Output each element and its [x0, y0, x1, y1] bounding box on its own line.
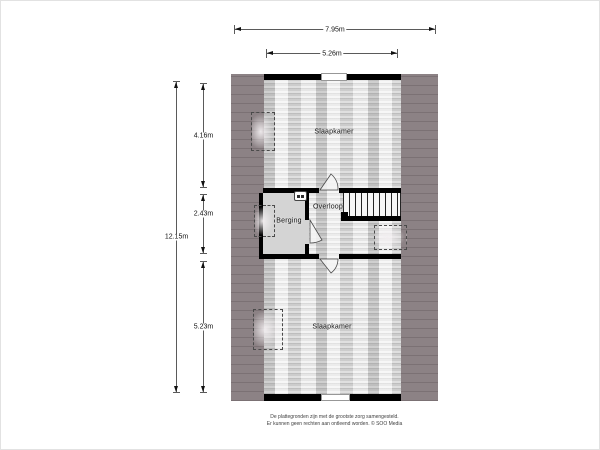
wall-bedroomtop-left	[263, 188, 319, 193]
boiler-icon	[294, 191, 307, 201]
dimension-bottom-height: 5.23m	[203, 261, 204, 393]
dimension-inner-width: 5.26m	[266, 53, 398, 54]
top-wall-right	[347, 74, 401, 80]
room-label-bedroom-bottom: Slaapkamer	[312, 324, 351, 331]
room-label-landing: Overloop	[313, 204, 343, 211]
stairs	[343, 193, 401, 217]
dimension-inner-width-label: 5.26m	[320, 50, 343, 57]
disclaimer-line-2: Er kunnen geen rechten aan ontleend word…	[231, 421, 438, 428]
stairs-newel-post	[341, 212, 348, 221]
bottom-wall-left	[264, 394, 321, 401]
dimension-middle-height: 2.43m	[203, 194, 204, 254]
dimension-top-height-label: 4.16m	[192, 132, 215, 139]
bottom-window	[321, 394, 350, 401]
disclaimer: De plattegronden zijn met de grootste zo…	[231, 414, 438, 427]
stairs-bottom-wall	[346, 216, 401, 221]
floorplan-canvas: Slaapkamer Overloop Berging Slaapkamer 7…	[0, 0, 600, 450]
skylight-marker	[374, 225, 407, 250]
wall-bedroomtop-right	[339, 188, 401, 193]
top-wall-left	[264, 74, 321, 80]
dimension-total-height-label: 12.15m	[163, 234, 190, 241]
room-label-storage: Berging	[276, 218, 302, 225]
skylight-marker	[253, 309, 283, 350]
wall-bedroombottom-left	[259, 254, 319, 259]
dimension-total-height: 12.15m	[176, 81, 177, 393]
dimension-total-width-label: 7.95m	[323, 26, 346, 33]
storage-right-wall-bottom	[305, 244, 309, 254]
dimension-bottom-height-label: 5.23m	[192, 324, 215, 331]
wall-bedroombottom-right	[339, 254, 401, 259]
room-label-bedroom-top: Slaapkamer	[314, 129, 353, 136]
dimension-total-width: 7.95m	[234, 29, 436, 30]
dimension-middle-height-label: 2.43m	[192, 211, 215, 218]
top-window	[321, 73, 347, 81]
bottom-wall-right	[350, 394, 401, 401]
dimension-top-height: 4.16m	[203, 83, 204, 188]
skylight-marker	[251, 112, 275, 151]
skylight-marker	[254, 205, 275, 237]
